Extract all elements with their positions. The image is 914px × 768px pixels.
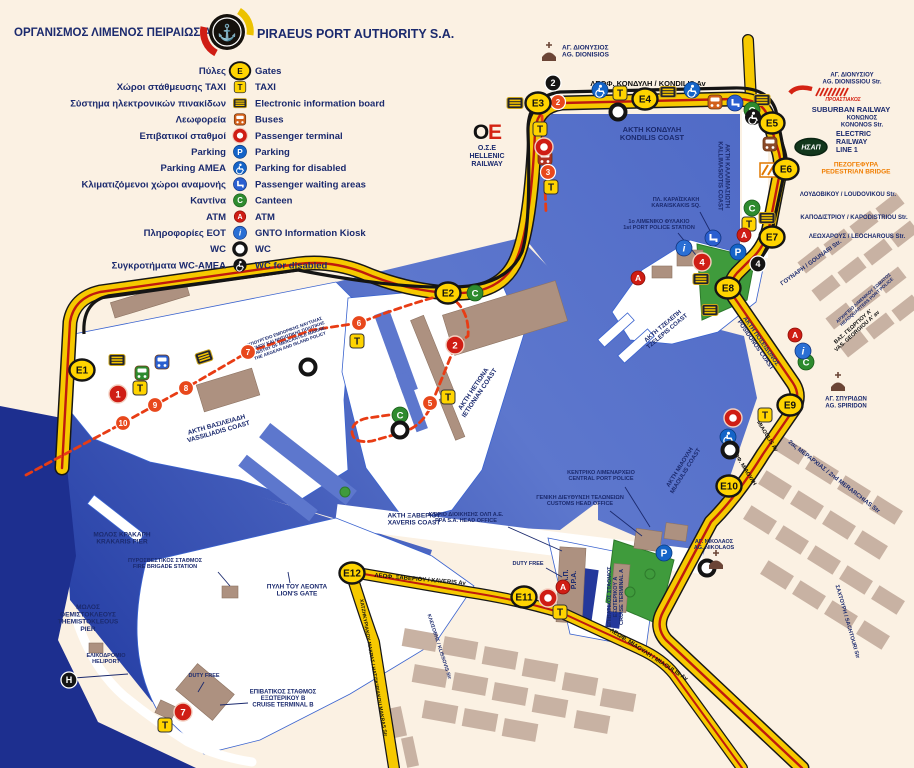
- parking-icon: P: [730, 244, 746, 260]
- route-stop-2: 2: [551, 95, 566, 110]
- legend-label-gr: Πληροφορίες ΕΟΤ: [144, 228, 227, 239]
- label-kononos-str: ΚΟΝΩΝΟΣKONONOS Str.: [841, 116, 884, 129]
- legend-wcdis-icon: [233, 259, 246, 272]
- passenger-terminal-icon: [724, 409, 742, 427]
- svg-text:T: T: [237, 83, 242, 92]
- route-stop-9: 9: [148, 398, 163, 413]
- label-port-police-station: 1ο ΛΙΜΕΝΙΚΟ ΦΥΛΑΚΙΟ1st PORT POLICE STATI…: [623, 219, 695, 231]
- label-fire-brigade: ΠΥΡΟΣΒΕΣΤΙΚΟΣ ΣΤΑΘΜΟΣFIRE BRIGADE STATIO…: [128, 558, 203, 570]
- gate-E4: E4: [633, 89, 658, 110]
- taxi-icon: T: [441, 390, 455, 404]
- label-kapodistriou-str: ΚΑΠΟΔΙΣΤΡΙΟΥ / KAPODISTRIOU Str.: [800, 215, 908, 221]
- svg-text:C: C: [237, 196, 243, 205]
- passenger-terminal-icon: 7: [174, 703, 192, 721]
- legend-label-en: ATM: [255, 212, 275, 223]
- svg-text:ΛΕΩΧΑΡΟΥΣ / LEOCHAROUS Str.: ΛΕΩΧΑΡΟΥΣ / LEOCHAROUS Str.: [809, 234, 906, 240]
- disabled-icon: [592, 82, 608, 98]
- legend-label-en: Parking: [255, 147, 290, 158]
- tree-icon: [645, 569, 655, 579]
- header-title-gr: ΟΡΓΑΝΙΣΜΟΣ ΛΙΜΕΝΟΣ ΠΕΙΡΑΙΩΣ Α.Ε.: [14, 27, 225, 39]
- legend-label-gr: Κλιματιζόμενοι χώροι αναμονής: [81, 179, 226, 190]
- svg-text:8: 8: [184, 384, 189, 393]
- passenger-terminal-icon: [539, 589, 557, 607]
- legend-atm-icon: A: [234, 211, 245, 222]
- gate-E12: E12: [340, 563, 365, 584]
- svg-text:T: T: [445, 393, 451, 404]
- legend-label-gr: WC: [210, 244, 226, 255]
- gate-E3: E3: [526, 93, 551, 114]
- gate-E7: E7: [760, 227, 785, 248]
- legend-row-terminal: Επιβατικοί σταθμοίPassenger terminal: [139, 128, 342, 143]
- taxi-icon: T: [133, 381, 147, 395]
- legend-row-wc: WCWC: [210, 243, 271, 255]
- legend-label-en: WC: [255, 244, 271, 255]
- svg-text:A: A: [741, 230, 747, 240]
- legend-label-en: Gates: [255, 66, 281, 77]
- svg-text:ΑΓ. ΔΙΟΝΥΣΙΟΥAG. DIONISSIOU St: ΑΓ. ΔΙΟΝΥΣΙΟΥAG. DIONISSIOU Str.: [822, 73, 881, 86]
- taxi-icon: T: [350, 334, 364, 348]
- gate-E5: E5: [760, 113, 785, 134]
- bus-icon: [763, 137, 777, 151]
- svg-text:ΑΓ. ΔΙΟΝΥΣΙΟΣAG. DIONISIOS: ΑΓ. ΔΙΟΝΥΣΙΟΣAG. DIONISIOS: [562, 44, 610, 58]
- gate-E1: E1: [70, 360, 95, 381]
- svg-text:i: i: [683, 244, 686, 255]
- svg-text:E11: E11: [515, 593, 533, 604]
- building: [652, 266, 672, 278]
- route-stop-7: 7: [241, 345, 256, 360]
- svg-text:E: E: [488, 121, 502, 144]
- svg-text:ΜΩΛΟΣ ΚΡΑΚΑΡΗKRAKARIS PIER: ΜΩΛΟΣ ΚΡΑΚΑΡΗKRAKARIS PIER: [93, 531, 151, 545]
- taxi-icon: T: [553, 605, 567, 619]
- station-4: 4: [750, 256, 766, 272]
- svg-text:ΑΚΤΗ ΚΟΝΔΥΛΗKONDILIS COAST: ΑΚΤΗ ΚΟΝΔΥΛΗKONDILIS COAST: [620, 125, 685, 142]
- svg-text:E7: E7: [766, 233, 779, 244]
- svg-text:E8: E8: [722, 284, 735, 295]
- svg-text:O: O: [473, 121, 489, 144]
- svg-text:ΑΓ. ΝΙΚΟΛΑΟΣAG. NIKOLAOS: ΑΓ. ΝΙΚΟΛΑΟΣAG. NIKOLAOS: [694, 539, 735, 551]
- legend-row-canteen: ΚαντίναCCanteen: [190, 194, 292, 207]
- bus-icon: [708, 95, 722, 109]
- wc-icon: [723, 443, 738, 458]
- gate-E2: E2: [436, 283, 461, 304]
- port-map: ΑΓ. ΔΙΟΝΥΣΙΟΣAG. DIONISIOSΛΕΩΦ. ΚΟΝΔΥΛΗ …: [0, 0, 914, 768]
- route-stop-6: 6: [352, 316, 367, 331]
- svg-text:ΗΣΑΠ: ΗΣΑΠ: [801, 145, 821, 152]
- svg-text:1: 1: [115, 389, 121, 400]
- svg-text:A: A: [635, 273, 641, 283]
- ose-logo: OE: [473, 121, 502, 144]
- svg-text:E3: E3: [532, 99, 545, 110]
- svg-text:ΚΟΝΩΝΟΣKONONOS Str.: ΚΟΝΩΝΟΣKONONOS Str.: [841, 116, 884, 129]
- label-suburban-railway: SUBURBAN RAILWAY: [812, 105, 890, 114]
- gate-E6: E6: [774, 159, 799, 180]
- svg-text:E9: E9: [784, 401, 797, 412]
- svg-text:10: 10: [119, 419, 128, 428]
- info-icon: i: [676, 240, 692, 256]
- gate-E11: E11: [512, 587, 537, 608]
- legend-label-en: Passenger waiting areas: [255, 179, 366, 190]
- legend-board-icon: [233, 99, 246, 108]
- label-krakaris-pier: ΜΩΛΟΣ ΚΡΑΚΑΡΗKRAKARIS PIER: [93, 531, 151, 545]
- svg-text:T: T: [548, 183, 554, 194]
- svg-text:H: H: [66, 675, 73, 685]
- svg-text:3: 3: [546, 168, 551, 177]
- station-H: H: [61, 672, 77, 688]
- hsap-logo: ΗΣΑΠ: [795, 139, 827, 156]
- legend-taxi-icon: T: [234, 81, 245, 92]
- svg-text:T: T: [354, 337, 360, 348]
- svg-text:E6: E6: [780, 165, 793, 176]
- svg-text:C: C: [472, 288, 479, 299]
- svg-text:ΛΟΥΔΟΒΙΚΟΥ / LOUDOVIKOU Str.: ΛΟΥΔΟΒΙΚΟΥ / LOUDOVIKOU Str.: [800, 192, 897, 198]
- gate-E9: E9: [778, 395, 803, 416]
- building: [89, 643, 103, 653]
- taxi-icon: T: [613, 86, 627, 100]
- waiting-icon: [705, 230, 721, 246]
- svg-text:P: P: [735, 248, 742, 259]
- legend-label-gr: Επιβατικοί σταθμοί: [139, 131, 226, 142]
- svg-text:ΠΥΡΟΣΒΕΣΤΙΚΟΣ ΣΤΑΘΜΟΣFIRE BRIG: ΠΥΡΟΣΒΕΣΤΙΚΟΣ ΣΤΑΘΜΟΣFIRE BRIGADE STATIO…: [128, 558, 203, 570]
- svg-text:9: 9: [153, 401, 158, 410]
- legend-bus-icon: [234, 114, 245, 125]
- svg-text:T: T: [137, 384, 143, 395]
- taxi-icon: T: [544, 180, 558, 194]
- gate-E8: E8: [716, 278, 741, 299]
- legend-label-gr: Χώροι στάθμευσης TAXI: [117, 82, 226, 93]
- legend-label-gr: Parking: [191, 147, 226, 158]
- legend-label-gr: ATM: [206, 212, 226, 223]
- passenger-terminal-icon: 4: [693, 253, 711, 271]
- svg-text:2: 2: [556, 98, 561, 107]
- atm-icon: A: [631, 271, 645, 285]
- route-stop-5: 5: [423, 396, 438, 411]
- svg-text:A: A: [560, 582, 566, 592]
- building: [222, 586, 238, 598]
- info-icon: i: [795, 343, 811, 359]
- svg-text:i: i: [802, 347, 805, 358]
- label-loudovikou-str: ΛΟΥΔΟΒΙΚΟΥ / LOUDOVIKOU Str.: [800, 192, 897, 198]
- svg-text:ΠΡΟΑΣΤΙΑΚΟΣ: ΠΡΟΑΣΤΙΑΚΟΣ: [825, 97, 861, 103]
- route-stop-3: 3: [541, 165, 556, 180]
- svg-text:C: C: [749, 203, 756, 214]
- svg-text:ΚΕΝΤΡΙΚΟ ΛΙΜΕΝΑΡΧΕΙΟCENTRAL PO: ΚΕΝΤΡΙΚΟ ΛΙΜΕΝΑΡΧΕΙΟCENTRAL PORT POLICE: [567, 470, 635, 482]
- svg-text:P: P: [661, 549, 668, 560]
- svg-text:SUBURBAN RAILWAY: SUBURBAN RAILWAY: [812, 105, 890, 114]
- svg-text:6: 6: [357, 319, 362, 328]
- passenger-terminal-icon: [535, 138, 553, 156]
- svg-text:C: C: [397, 410, 404, 421]
- legend-row-wcdis: Συγκροτήματα WC-ΑΜΕΑWC for disabled: [112, 259, 328, 272]
- svg-text:A: A: [792, 330, 798, 340]
- svg-text:P: P: [237, 148, 243, 157]
- passenger-terminal-icon: 2: [446, 336, 464, 354]
- label-ag-spiridon: ΑΓ. ΣΠΥΡΙΔΩΝAG. SPIRIDON: [825, 397, 867, 410]
- legend-wc-icon: [234, 243, 246, 255]
- svg-text:7: 7: [180, 707, 185, 718]
- label-leocharous-str: ΛΕΩΧΑΡΟΥΣ / LEOCHAROUS Str.: [809, 234, 906, 240]
- label-akti-xaveriou: ΑΚΤΗ ΞΑΒΕΡΙΟΥXAVERIS COAST: [387, 512, 441, 526]
- legend-parking-icon: P: [233, 145, 246, 158]
- legend-label-en: Buses: [255, 115, 284, 126]
- legend-label-en: GNTO Information Kiosk: [255, 228, 366, 239]
- canteen-icon: C: [467, 285, 483, 301]
- legend-terminal-icon: [233, 128, 248, 143]
- svg-text:T: T: [762, 411, 768, 422]
- legend-label-en: Parking for disabled: [255, 163, 347, 174]
- label-central-port-police: ΚΕΝΤΡΙΚΟ ΛΙΜΕΝΑΡΧΕΙΟCENTRAL PORT POLICE: [567, 470, 635, 482]
- route-stop-10: 10: [116, 416, 131, 431]
- legend-label-gr: Συγκροτήματα WC-ΑΜΕΑ: [112, 260, 226, 271]
- label-akti-kallimasioti: ΑΚΤΗ ΚΑΛΛΙΜΑΣΙΩΤΗKALLIMASIOTIS COAST: [717, 141, 730, 211]
- legend-row-waiting: Κλιματιζόμενοι χώροι αναμονήςPassenger w…: [81, 178, 365, 191]
- board-icon: [660, 87, 676, 98]
- canteen-icon: C: [744, 200, 760, 216]
- label-karaiskaki-sq: ΠΛ. ΚΑΡΑΪΣΚΑΚΗKARAISKAKIS SQ.: [651, 196, 701, 209]
- svg-text:E10: E10: [720, 482, 738, 493]
- board-icon: [109, 355, 125, 366]
- disabled-icon: [684, 82, 700, 98]
- legend-label-en: Passenger terminal: [255, 131, 343, 142]
- label-ag-dionisios: ΑΓ. ΔΙΟΝΥΣΙΟΣAG. DIONISIOS: [562, 44, 610, 58]
- label-duty-free-b: DUTY FREE: [188, 673, 219, 679]
- taxi-icon: T: [533, 122, 547, 136]
- parking-icon: P: [656, 545, 672, 561]
- svg-text:T: T: [617, 89, 623, 100]
- route-stop-8: 8: [179, 381, 194, 396]
- legend-gate-icon: E: [230, 62, 251, 79]
- label-ag-nikolaos: ΑΓ. ΝΙΚΟΛΑΟΣAG. NIKOLAOS: [694, 539, 735, 551]
- wc-icon: [393, 423, 408, 438]
- svg-text:ΓΕΝΙΚΗ ΔΙΕΥΘΥΝΣΗ ΤΕΛΩΝΕΙΩΝCUST: ΓΕΝΙΚΗ ΔΙΕΥΘΥΝΣΗ ΤΕΛΩΝΕΙΩΝCUSTOMS HEAD O…: [536, 495, 624, 507]
- board-icon: [693, 274, 709, 285]
- waiting-icon: [727, 95, 743, 111]
- svg-text:DUTY FREE: DUTY FREE: [512, 561, 543, 567]
- legend-waiting-icon: [233, 178, 246, 191]
- svg-text:7: 7: [246, 348, 251, 357]
- svg-text:DUTY FREE: DUTY FREE: [188, 673, 219, 679]
- label-ag-dionissiou-str: ΑΓ. ΔΙΟΝΥΣΙΟΥAG. DIONISSIOU Str.: [822, 73, 881, 86]
- passenger-terminal-icon: 1: [109, 385, 127, 403]
- taxi-icon: T: [758, 408, 772, 422]
- legend-row-parking: ParkingPParking: [191, 145, 290, 158]
- svg-text:ΚΑΠΟΔΙΣΤΡΙΟΥ / KAPODISTRIOU St: ΚΑΠΟΔΙΣΤΡΙΟΥ / KAPODISTRIOU Str.: [800, 215, 908, 221]
- legend-label-en: Canteen: [255, 196, 293, 207]
- tree-icon: [340, 487, 350, 497]
- wc-icon: [301, 360, 316, 375]
- legend-info-icon: i: [233, 226, 246, 239]
- station-2: 2: [545, 75, 561, 91]
- svg-text:E: E: [237, 67, 243, 76]
- svg-text:2: 2: [550, 78, 555, 88]
- board-icon: [702, 305, 718, 316]
- legend-label-gr: Parking ΑΜΕΑ: [161, 163, 227, 174]
- svg-text:E12: E12: [343, 569, 361, 580]
- legend-disabled-icon: [233, 161, 246, 174]
- label-customs-head-office: ΓΕΝΙΚΗ ΔΙΕΥΘΥΝΣΗ ΤΕΛΩΝΕΙΩΝCUSTOMS HEAD O…: [536, 495, 624, 507]
- legend-label-en: WC for disabled: [255, 260, 328, 271]
- svg-text:1ο ΛΙΜΕΝΙΚΟ ΦΥΛΑΚΙΟ1st PORT PO: 1ο ΛΙΜΕΝΙΚΟ ΦΥΛΑΚΙΟ1st PORT POLICE STATI…: [623, 219, 695, 231]
- legend-canteen-icon: C: [233, 194, 246, 207]
- svg-text:E4: E4: [639, 95, 652, 106]
- tree-icon: [625, 587, 635, 597]
- header-title-en: PIRAEUS PORT AUTHORITY S.A.: [257, 27, 454, 41]
- svg-text:T: T: [162, 721, 168, 732]
- svg-text:T: T: [557, 608, 563, 619]
- atm-icon: A: [788, 328, 802, 342]
- svg-text:4: 4: [755, 259, 760, 269]
- legend-row-atm: ATMAATM: [206, 211, 275, 223]
- legend-label-gr: Σύστημα ηλεκτρονικών πινακίδων: [70, 98, 226, 109]
- legend-label-gr: Πύλες: [199, 66, 226, 77]
- legend-label-gr: Καντίνα: [190, 196, 226, 207]
- gate-E10: E10: [717, 476, 742, 497]
- label-duty-free-a: DUTY FREE: [512, 561, 543, 567]
- atm-icon: A: [556, 580, 570, 594]
- anchor-icon: ⚓: [217, 23, 237, 42]
- bus-icon: [135, 366, 149, 380]
- svg-text:A: A: [237, 214, 242, 221]
- board-icon: [507, 98, 523, 109]
- wc-icon: [611, 105, 626, 120]
- svg-text:2: 2: [452, 340, 457, 351]
- svg-text:E5: E5: [766, 119, 779, 130]
- svg-text:ΑΚΤΗ ΞΑΒΕΡΙΟΥXAVERIS COAST: ΑΚΤΗ ΞΑΒΕΡΙΟΥXAVERIS COAST: [387, 512, 441, 526]
- label-proastiakos: ΠΡΟΑΣΤΙΑΚΟΣ: [825, 97, 861, 103]
- svg-text:4: 4: [699, 257, 705, 268]
- svg-text:E2: E2: [442, 289, 455, 300]
- legend-label-en: Electronic information board: [255, 98, 385, 109]
- svg-text:ΑΓ. ΣΠΥΡΙΔΩΝAG. SPIRIDON: ΑΓ. ΣΠΥΡΙΔΩΝAG. SPIRIDON: [825, 397, 867, 410]
- atm-icon: A: [737, 228, 751, 242]
- svg-text:ΠΛ. ΚΑΡΑΪΣΚΑΚΗKARAISKAKIS SQ.: ΠΛ. ΚΑΡΑΪΣΚΑΚΗKARAISKAKIS SQ.: [651, 196, 701, 209]
- label-akti-kondili: ΑΚΤΗ ΚΟΝΔΥΛΗKONDILIS COAST: [620, 125, 685, 142]
- building: [664, 523, 688, 542]
- top-branch-road: [748, 40, 751, 100]
- svg-text:T: T: [537, 125, 543, 136]
- svg-text:5: 5: [428, 399, 433, 408]
- legend-row-info: Πληροφορίες ΕΟΤiGNTO Information Kiosk: [144, 226, 367, 239]
- taxi-icon: T: [158, 718, 172, 732]
- svg-text:ΑΚΤΗ ΚΑΛΛΙΜΑΣΙΩΤΗKALLIMASIOTIS: ΑΚΤΗ ΚΑΛΛΙΜΑΣΙΩΤΗKALLIMASIOTIS COAST: [717, 141, 730, 211]
- legend-label-en: TAXI: [255, 82, 276, 93]
- bus-icon: [155, 355, 169, 369]
- board-icon: [759, 213, 775, 224]
- legend-label-gr: Λεωφορεία: [176, 115, 226, 126]
- svg-text:E1: E1: [76, 366, 89, 377]
